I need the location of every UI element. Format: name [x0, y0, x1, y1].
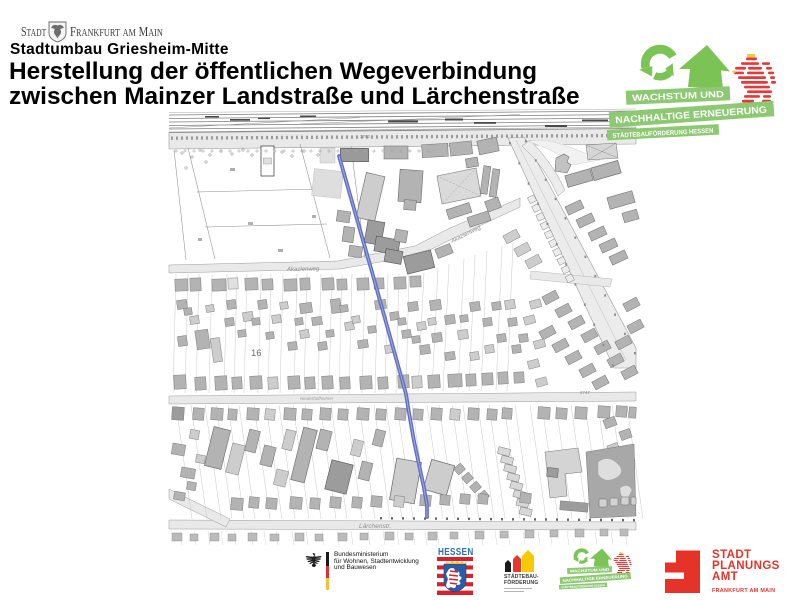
svg-text:2762: 2762 [360, 134, 371, 139]
svg-text:Akazienweg: Akazienweg [286, 266, 320, 273]
svg-text:2747: 2747 [580, 390, 591, 395]
svg-text:Lärchenstr.: Lärchenstr. [359, 523, 391, 530]
svg-text:16: 16 [251, 348, 262, 359]
svg-text:Niederhofheimer: Niederhofheimer [300, 396, 334, 401]
